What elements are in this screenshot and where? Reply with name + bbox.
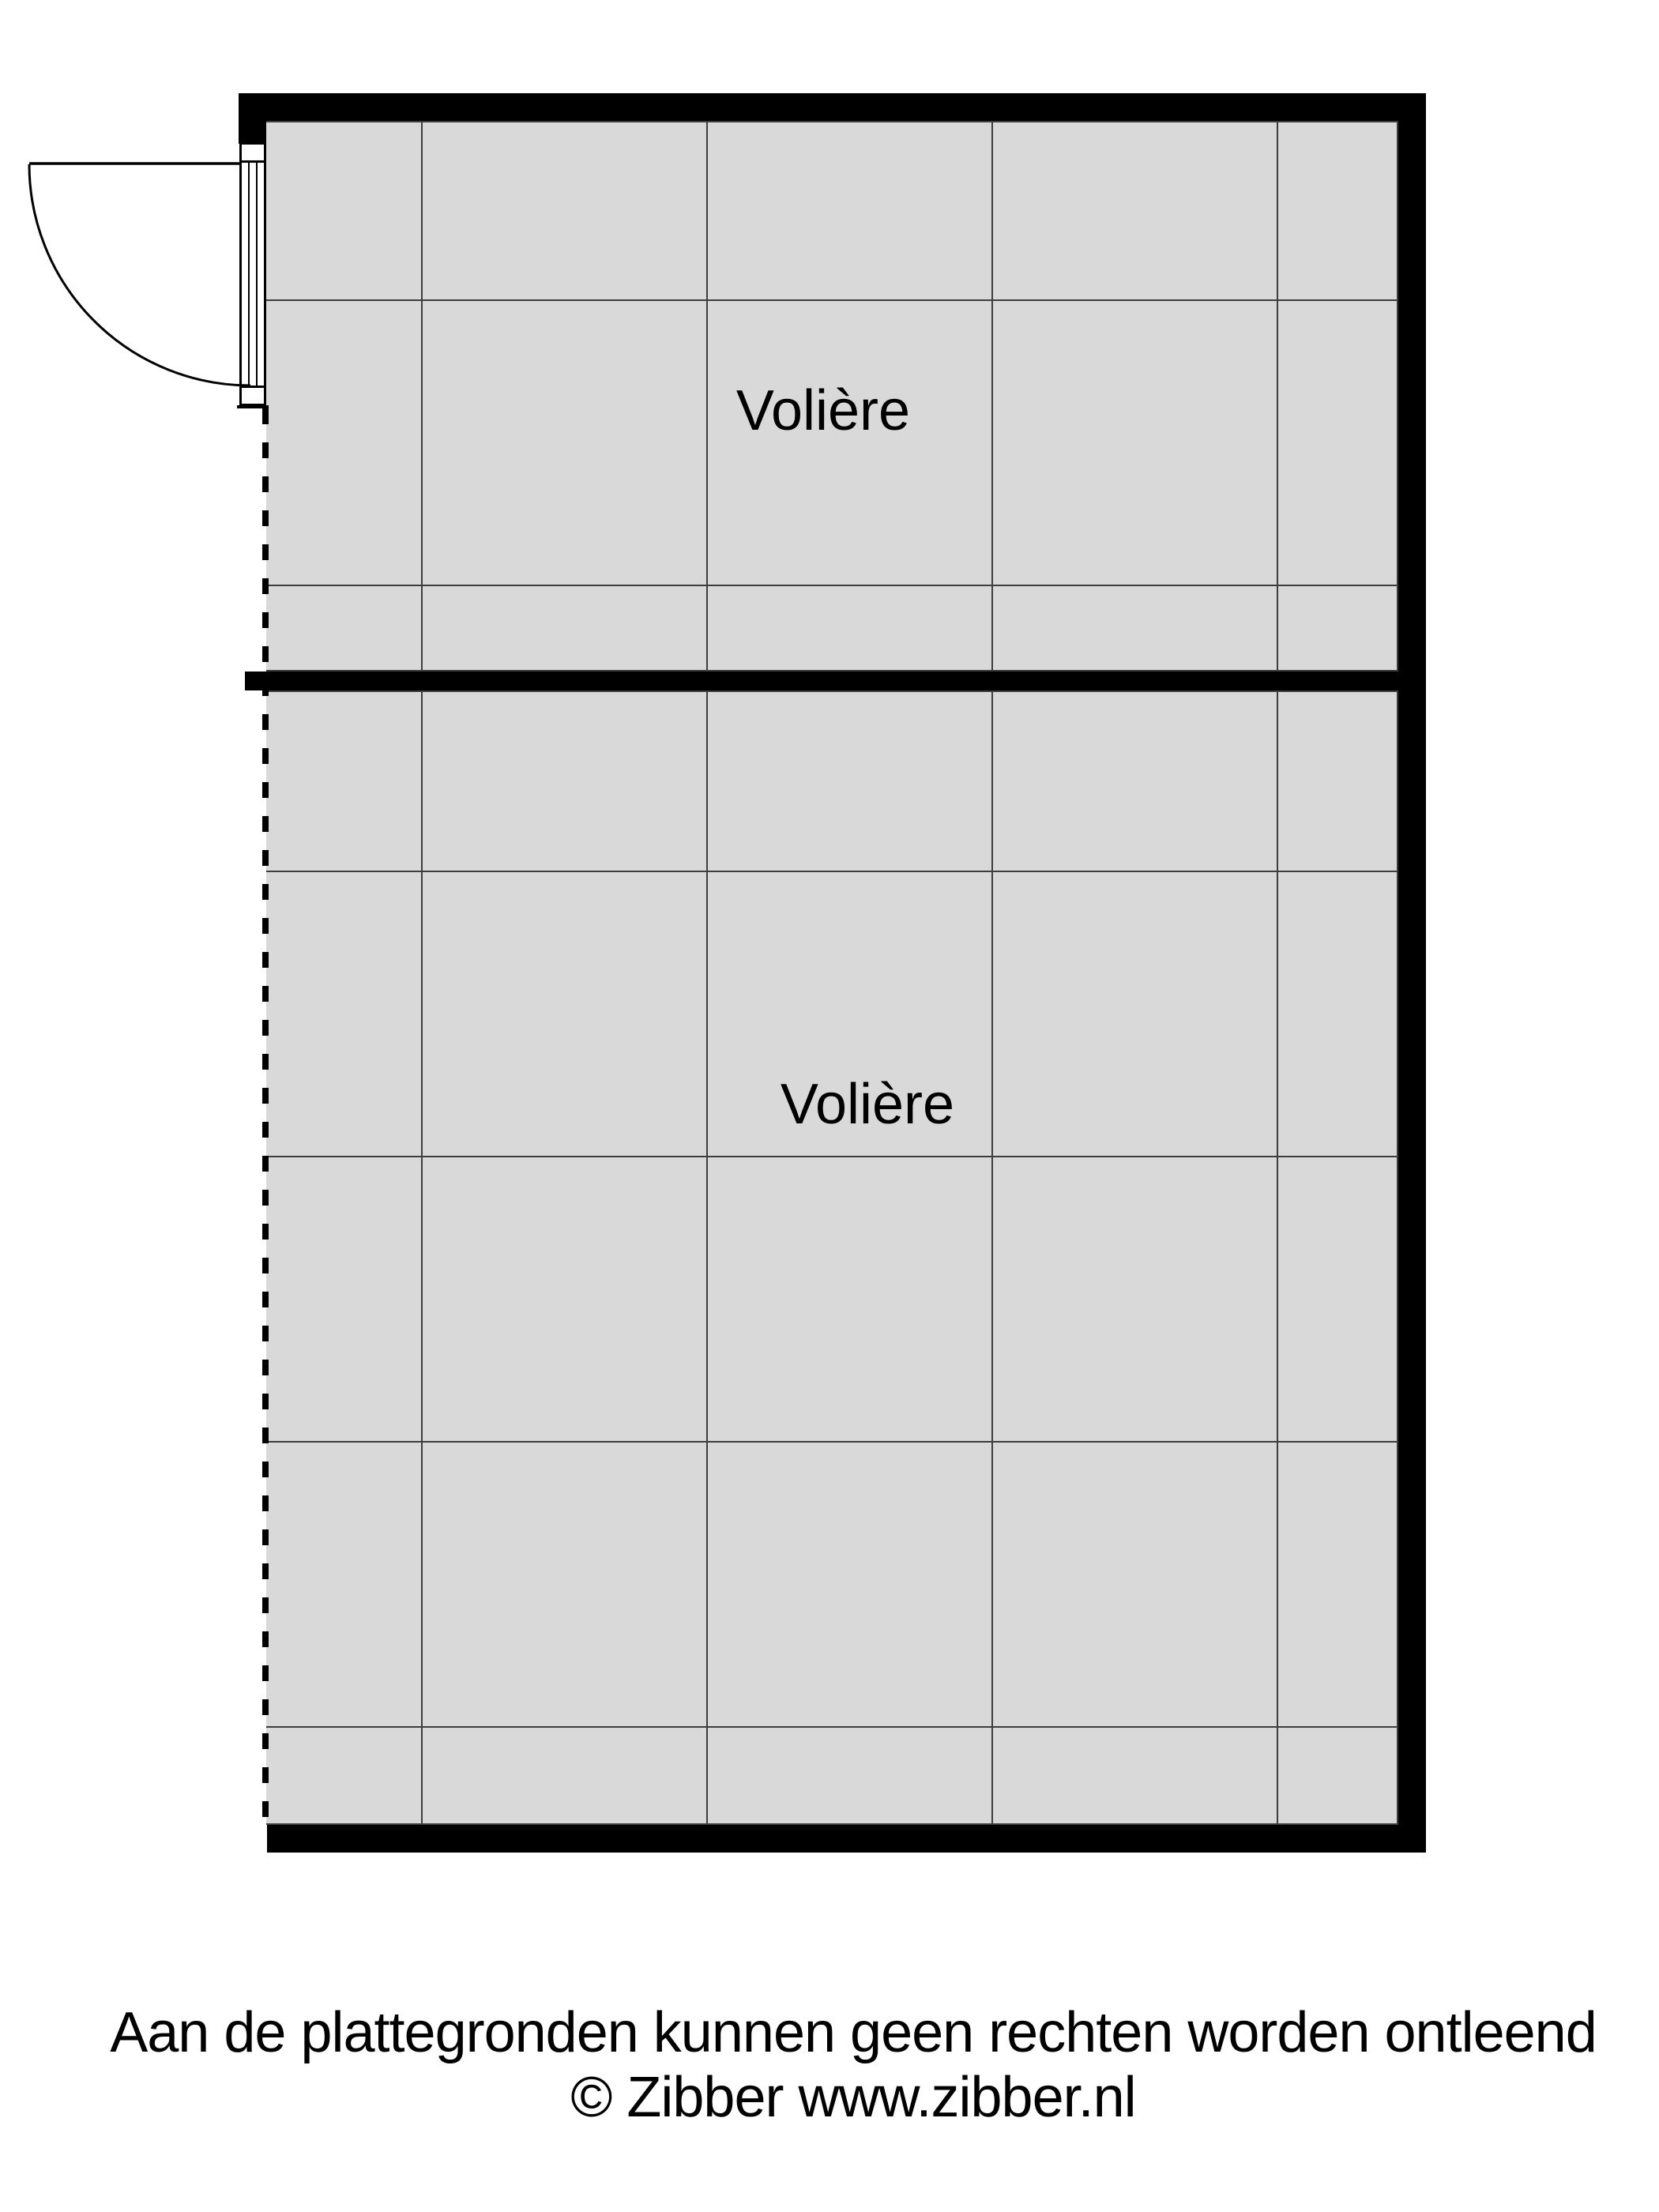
wall-bottom	[267, 1825, 1426, 1853]
grid-line-horizontal	[266, 1441, 1398, 1443]
disclaimer-line-2: © Zibber www.zibber.nl	[47, 2065, 1659, 2130]
grid-line-vertical	[991, 121, 993, 1825]
door-jamb-bottom	[239, 386, 266, 406]
door-threshold	[237, 405, 269, 408]
open-wall-dashed-line	[262, 408, 269, 1825]
disclaimer: Aan de plattegronden kunnen geen rechten…	[47, 2000, 1659, 2130]
room-label: Volière	[736, 378, 910, 443]
door-frame	[239, 163, 266, 386]
grid-line-horizontal	[266, 1156, 1398, 1157]
wall-top	[239, 93, 1426, 121]
grid-line-vertical	[706, 121, 708, 1825]
wall-right	[1398, 93, 1426, 1853]
grid-line-vertical	[421, 121, 423, 1825]
floorplan-canvas: Volière Volière Aan de plattegronden kun…	[0, 0, 1659, 2212]
grid-line-horizontal	[266, 1726, 1398, 1728]
disclaimer-line-1: Aan de plattegronden kunnen geen rechten…	[47, 2000, 1659, 2065]
grid-line-horizontal	[266, 299, 1398, 301]
grid-line-horizontal	[266, 585, 1398, 586]
door-jamb-top	[239, 142, 266, 163]
room-label: Volière	[781, 1072, 954, 1137]
grid-line-vertical	[1277, 121, 1278, 1825]
room-lower-voliere	[266, 690, 1398, 1825]
wall-room-divider	[245, 671, 1398, 690]
grid-line-horizontal	[266, 871, 1398, 872]
wall-left-stub	[239, 93, 266, 144]
